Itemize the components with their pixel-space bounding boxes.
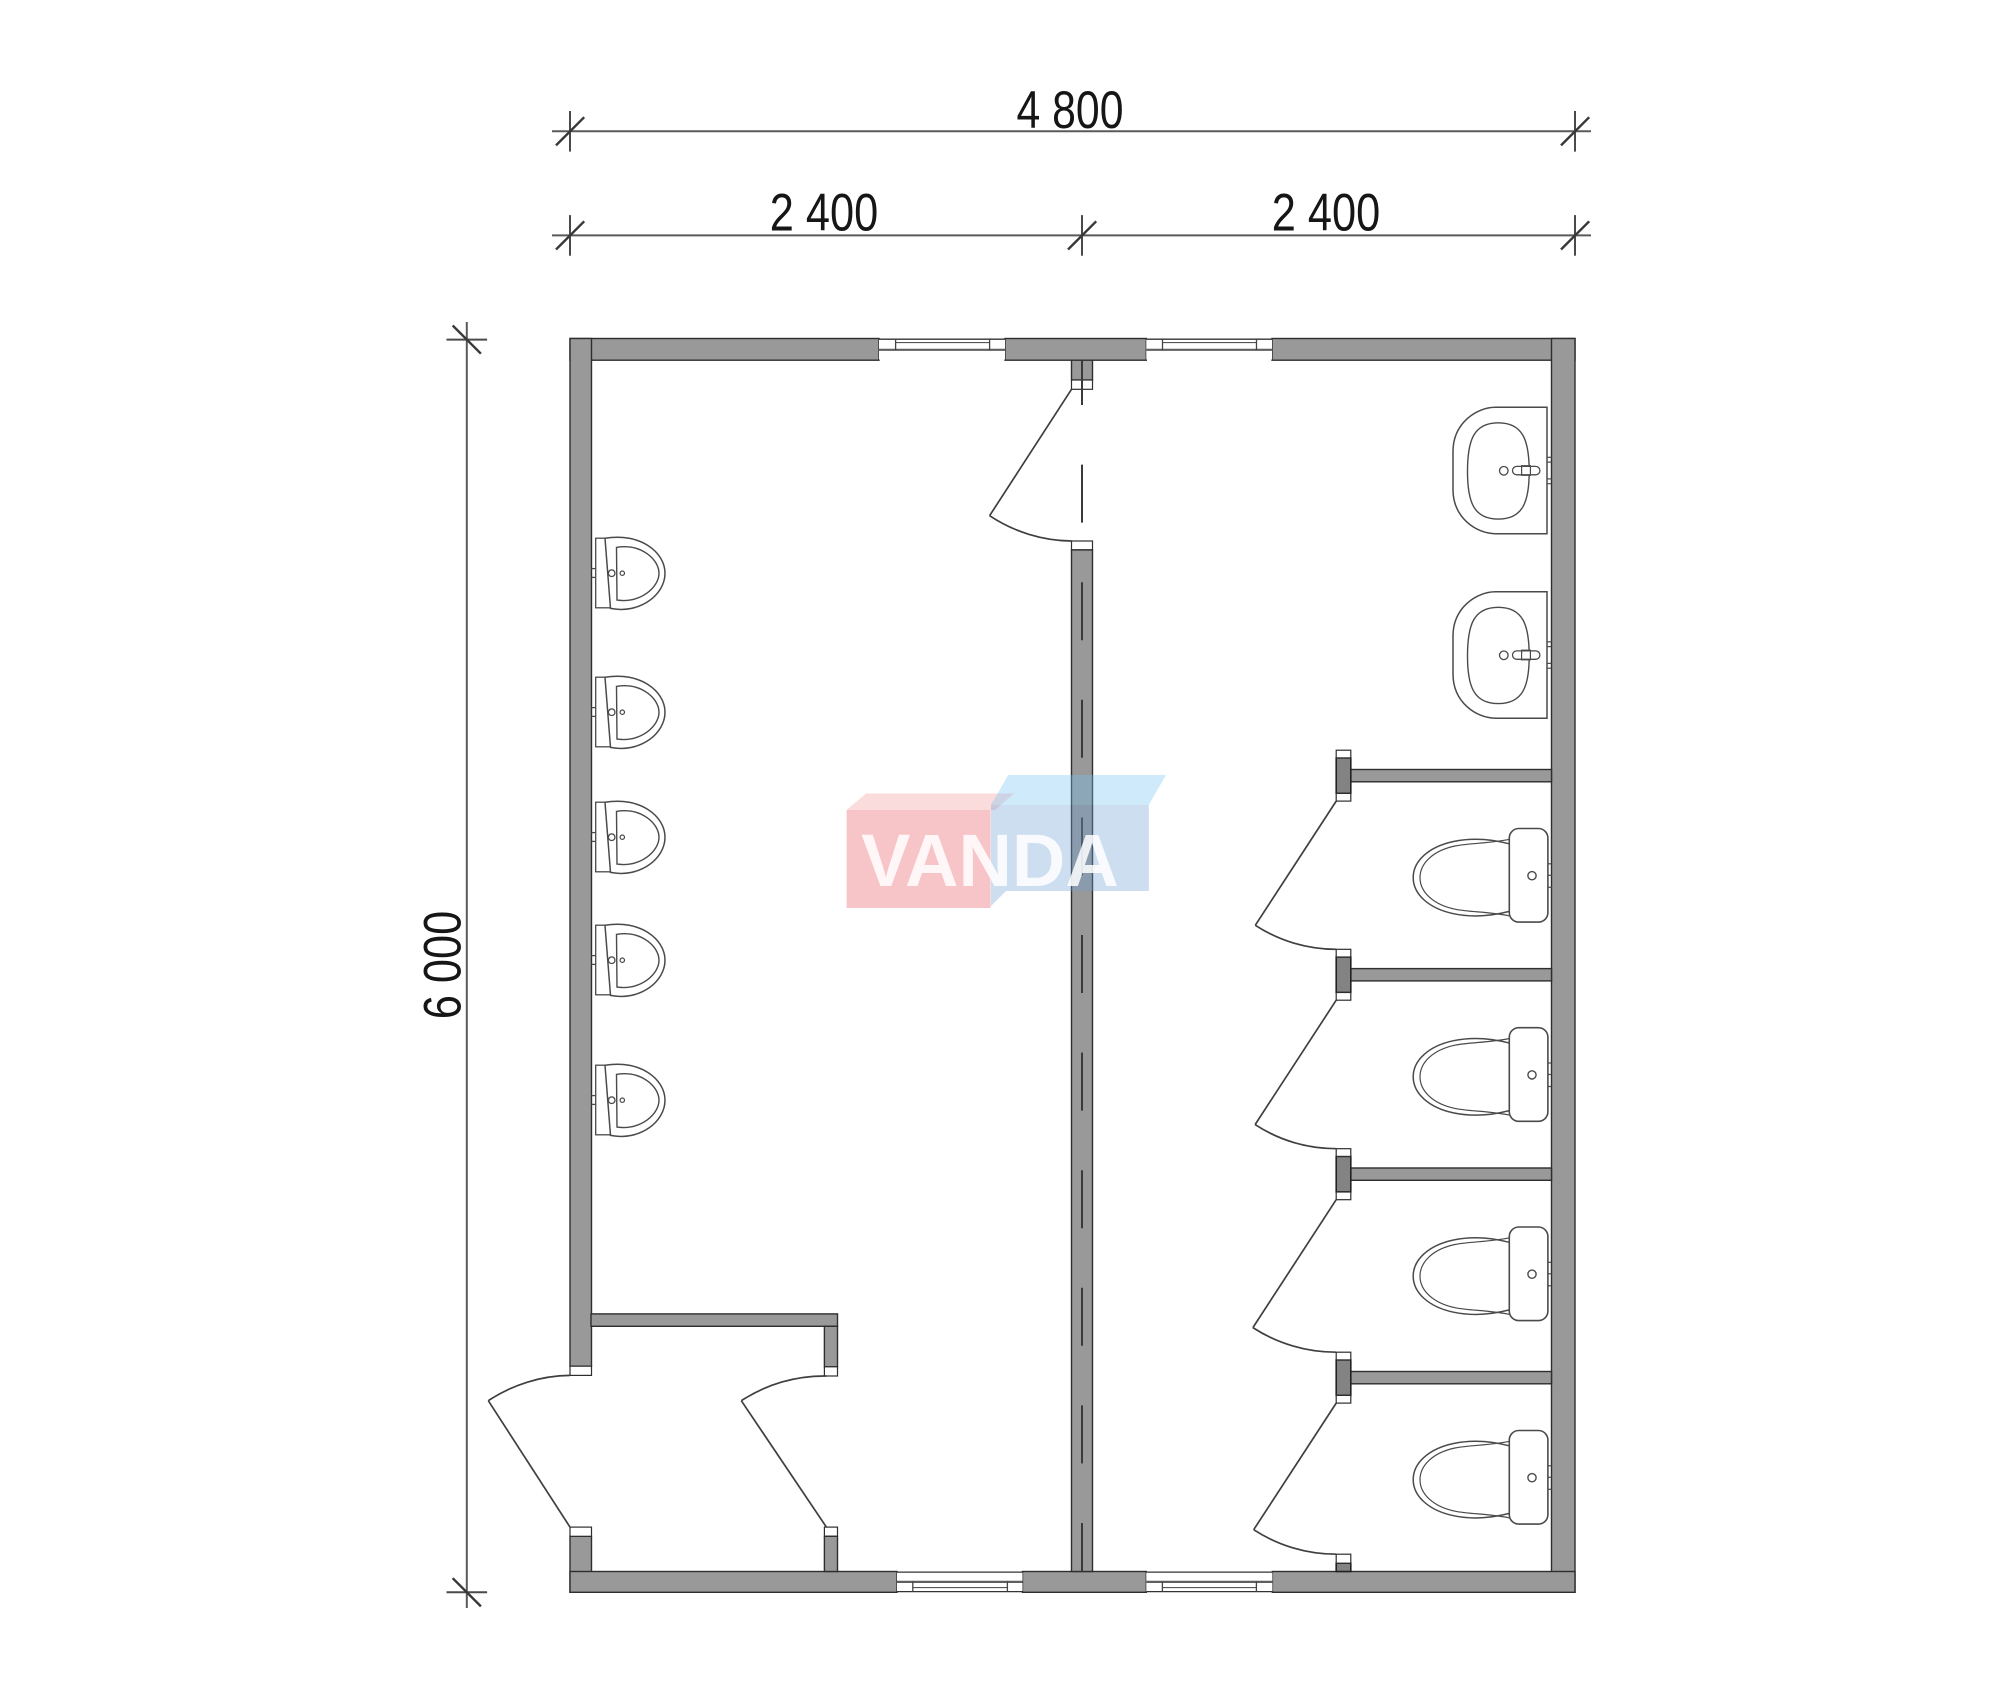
svg-text:2 400: 2 400 [1272, 184, 1381, 243]
svg-text:2 400: 2 400 [770, 184, 879, 243]
svg-text:4 800: 4 800 [1017, 81, 1124, 140]
svg-text:6 000: 6 000 [414, 911, 473, 1020]
svg-text:VANDA: VANDA [861, 819, 1119, 902]
